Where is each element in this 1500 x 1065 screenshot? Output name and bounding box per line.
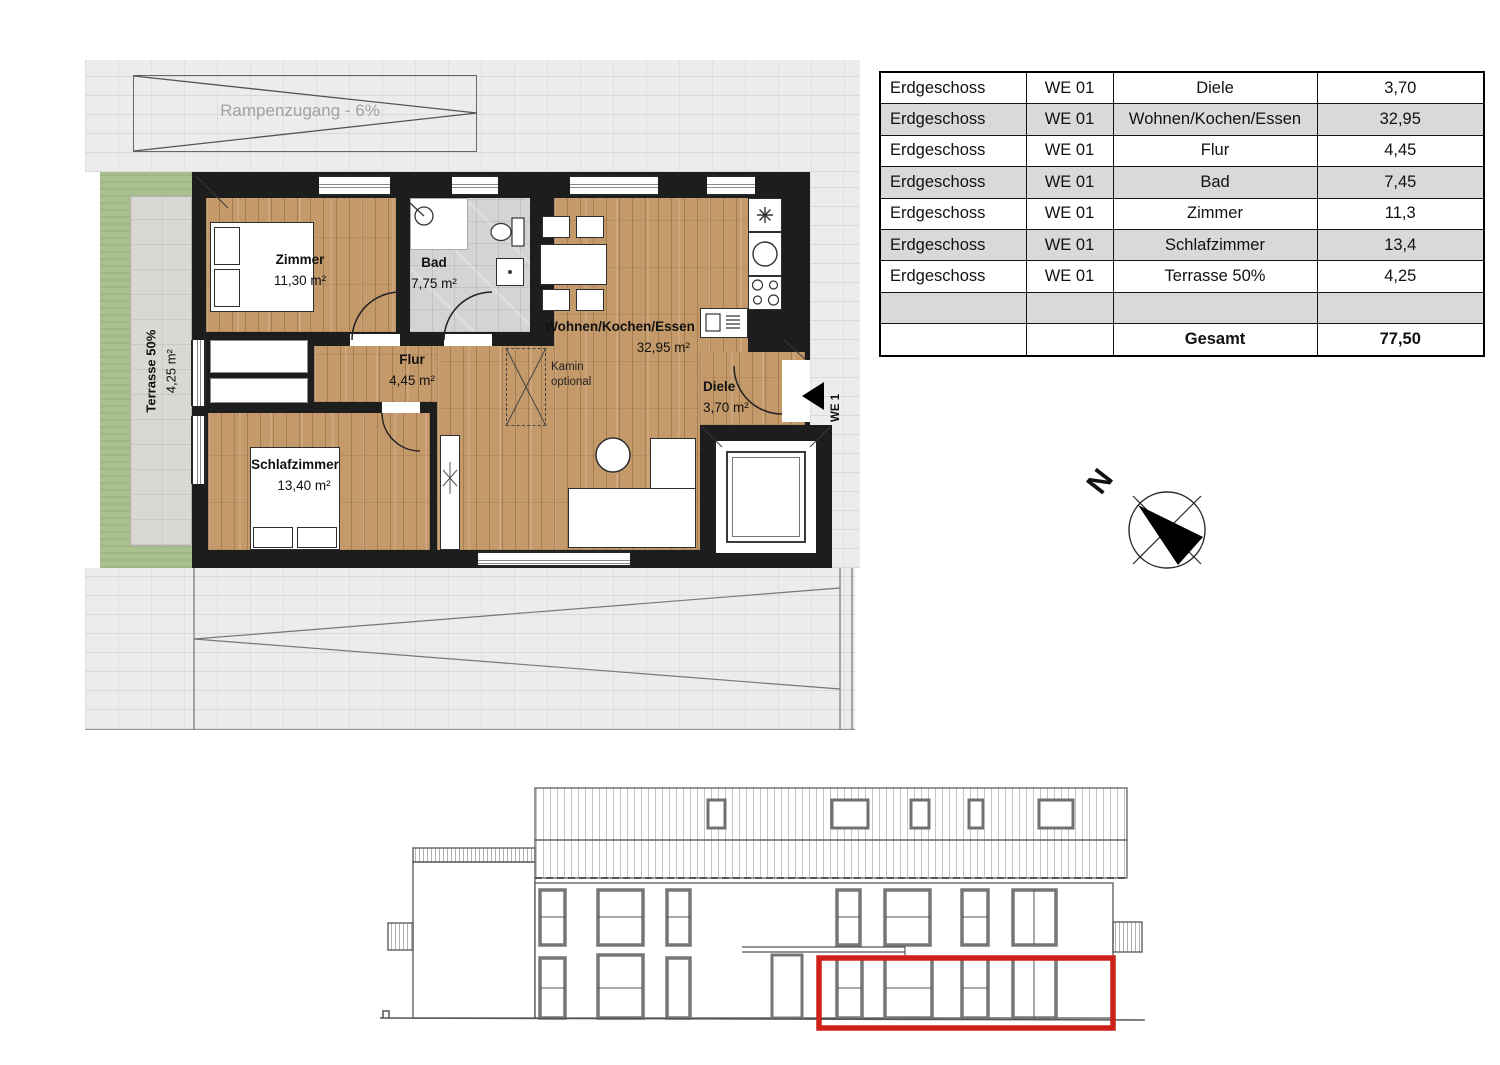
cell-floor <box>880 324 1026 356</box>
cell-room <box>1113 292 1317 323</box>
cell-value: 77,50 <box>1317 324 1484 356</box>
cell-room: Zimmer <box>1113 198 1317 229</box>
table-row: Erdgeschoss WE 01 Bad 7,45 <box>880 167 1484 198</box>
cell-floor: Erdgeschoss <box>880 261 1026 292</box>
cell-floor: Erdgeschoss <box>880 198 1026 229</box>
cell-floor: Erdgeschoss <box>880 135 1026 166</box>
left-balcony-railing <box>388 923 413 950</box>
cell-value: 13,4 <box>1317 229 1484 260</box>
north-compass: N <box>1085 448 1255 618</box>
table-row-empty <box>880 292 1484 323</box>
cell-unit: WE 01 <box>1026 104 1113 135</box>
left-wing <box>413 862 535 1018</box>
bath-fixtures <box>410 203 524 274</box>
cell-value: 3,70 <box>1317 72 1484 104</box>
door-arcs <box>352 292 782 451</box>
building-elevation <box>375 775 1150 1065</box>
driveway-lines <box>194 568 852 730</box>
cell-value: 4,25 <box>1317 261 1484 292</box>
right-balcony-railing <box>1113 922 1142 952</box>
table-row-total: Gesamt 77,50 <box>880 324 1484 356</box>
cell-room: Flur <box>1113 135 1317 166</box>
cell-floor: Erdgeschoss <box>880 104 1026 135</box>
cell-unit <box>1026 324 1113 356</box>
side-table <box>596 438 630 472</box>
tv-glyph <box>443 462 457 494</box>
left-wing-railing <box>413 848 535 862</box>
floorplan-page: { "floorplan": { "ramp_label": "Rampenzu… <box>0 0 1500 1061</box>
cell-room: Gesamt <box>1113 324 1317 356</box>
north-label: N <box>1085 463 1120 500</box>
kamin-cross <box>506 348 546 426</box>
cell-unit: WE 01 <box>1026 198 1113 229</box>
table-row: Erdgeschoss WE 01 Diele 3,70 <box>880 72 1484 104</box>
cell-floor: Erdgeschoss <box>880 72 1026 104</box>
cell-unit: WE 01 <box>1026 229 1113 260</box>
table-row: Erdgeschoss WE 01 Schlafzimmer 13,4 <box>880 229 1484 260</box>
cell-room: Terrasse 50% <box>1113 261 1317 292</box>
cell-floor: Erdgeschoss <box>880 167 1026 198</box>
cell-unit: WE 01 <box>1026 261 1113 292</box>
cell-room: Wohnen/Kochen/Essen <box>1113 104 1317 135</box>
cell-unit: WE 01 <box>1026 72 1113 104</box>
cell-unit: WE 01 <box>1026 135 1113 166</box>
table-row: Erdgeschoss WE 01 Wohnen/Kochen/Essen 32… <box>880 104 1484 135</box>
cell-room: Diele <box>1113 72 1317 104</box>
ramp-arrow <box>134 76 477 151</box>
cell-value: 7,45 <box>1317 167 1484 198</box>
table-row: Erdgeschoss WE 01 Terrasse 50% 4,25 <box>880 261 1484 292</box>
wall-hatches <box>196 176 830 447</box>
cell-value <box>1317 292 1484 323</box>
entrance-door <box>772 955 802 1018</box>
table-row: Erdgeschoss WE 01 Flur 4,45 <box>880 135 1484 166</box>
cell-floor: Erdgeschoss <box>880 229 1026 260</box>
cell-unit <box>1026 292 1113 323</box>
cell-room: Bad <box>1113 167 1317 198</box>
cell-value: 32,95 <box>1317 104 1484 135</box>
cell-unit: WE 01 <box>1026 167 1113 198</box>
table-row: Erdgeschoss WE 01 Zimmer 11,3 <box>880 198 1484 229</box>
cell-room: Schlafzimmer <box>1113 229 1317 260</box>
area-table: Erdgeschoss WE 01 Diele 3,70 Erdgeschoss… <box>879 71 1485 357</box>
entrance-arrow <box>802 382 824 410</box>
cell-value: 11,3 <box>1317 198 1484 229</box>
cell-value: 4,45 <box>1317 135 1484 166</box>
kitchen-icons <box>706 207 779 331</box>
cell-floor <box>880 292 1026 323</box>
